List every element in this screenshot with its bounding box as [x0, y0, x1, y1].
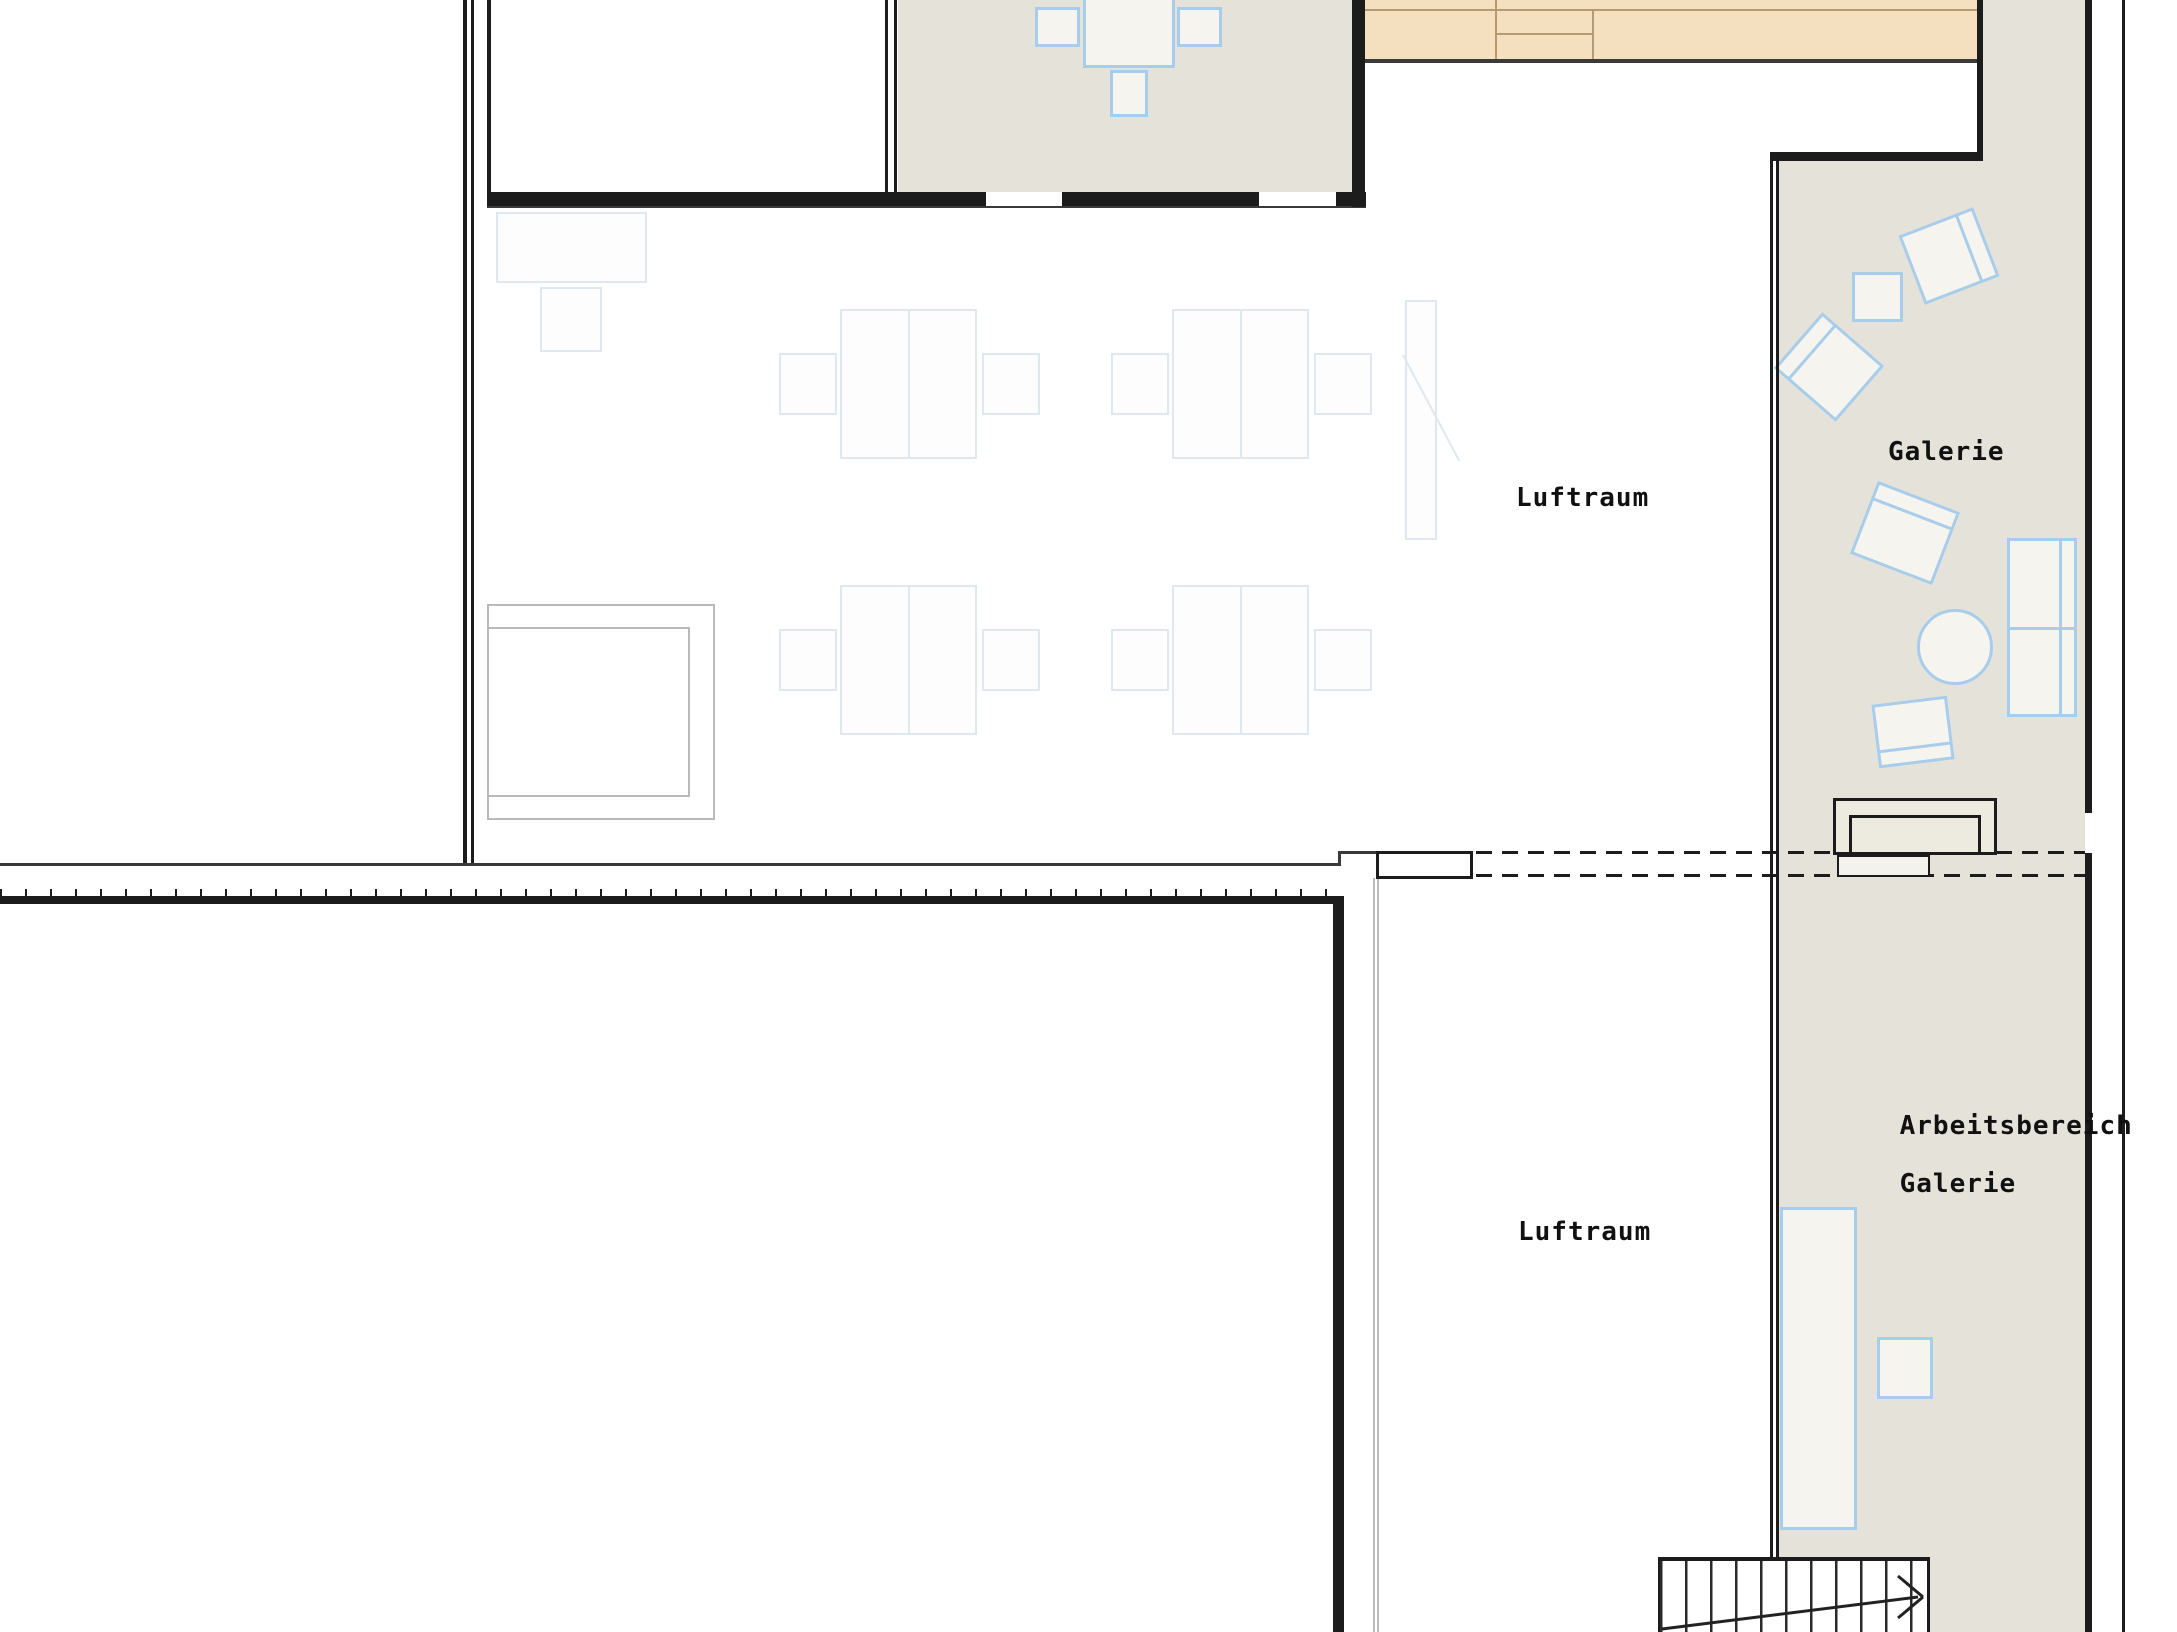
desk-chair — [1111, 353, 1169, 415]
floor-plan-canvas: Galerie Luftraum Luftraum Arbeitsbereich… — [0, 0, 2177, 1632]
label-luftraum-lower: Luftraum — [1518, 1218, 1651, 1247]
wall-left-outer — [463, 0, 467, 866]
void-lower-edge — [1377, 878, 1379, 1632]
wall-jamb — [487, 0, 491, 193]
wall-right — [2085, 853, 2092, 1632]
side-table — [1852, 272, 1903, 322]
wall-meeting-left — [894, 0, 897, 192]
desk-chair — [779, 353, 837, 415]
facade-line — [2122, 0, 2125, 1632]
wall-lower-room-top — [0, 896, 1344, 904]
wall-gallery-left — [1776, 152, 1779, 1557]
desk-chair — [982, 353, 1040, 415]
wall-hall-top — [487, 192, 898, 206]
wood-plank-line — [1592, 9, 1594, 59]
sofa — [2007, 538, 2077, 717]
label-arbeitsbereich-line1: Arbeitsbereich — [1900, 1111, 2133, 1141]
meeting-table — [1083, 0, 1175, 68]
desk-chair — [1314, 353, 1372, 415]
desk-group — [1172, 309, 1309, 459]
lounge-chair — [1871, 696, 1954, 769]
meeting-chair-bottom — [1110, 70, 1148, 117]
gallery-area-top-right — [1983, 0, 2085, 160]
desk-chair — [779, 629, 837, 691]
void-edge-line — [0, 863, 1338, 866]
floor-opening-inner — [487, 627, 690, 797]
desk-chair — [1111, 629, 1169, 691]
wall-pier — [1376, 851, 1473, 879]
desk-group — [1172, 585, 1309, 735]
desk-chair — [982, 629, 1040, 691]
wood-floor-edge — [1365, 59, 1983, 63]
work-chair — [1877, 1337, 1933, 1399]
dashed-line-lower — [1476, 874, 2085, 877]
label-arbeitsbereich-line2: Galerie — [1900, 1169, 2017, 1199]
void-lower-edge — [1373, 878, 1375, 1632]
wall-gallery-left — [1770, 152, 1773, 1557]
label-luftraum-upper: Luftraum — [1516, 484, 1649, 513]
desk-group — [840, 585, 977, 735]
wall-right — [2085, 0, 2092, 813]
wall-lower-room-right — [1333, 896, 1344, 1632]
round-table — [1917, 609, 1993, 685]
wall-hall-top — [898, 192, 986, 206]
wall-hall-top — [1062, 192, 1259, 206]
desk-group — [840, 309, 977, 459]
hall-chair — [540, 287, 602, 352]
label-galerie: Galerie — [1888, 438, 2005, 467]
void-edge-panel — [1405, 300, 1437, 540]
wood-plank-line — [1495, 0, 1497, 59]
stair-direction-arrow — [1650, 1555, 1950, 1632]
wall-gallery-top — [1770, 152, 1983, 161]
hall-cabinet — [496, 212, 647, 283]
gallery-niche-sill — [1837, 855, 1930, 877]
meeting-chair-left — [1035, 7, 1080, 47]
gallery-niche-inner — [1849, 815, 1981, 855]
void-edge-line — [1341, 851, 1379, 854]
wall-left-inner — [471, 0, 474, 866]
wood-plank-line — [1495, 33, 1592, 35]
wall-meeting-left — [885, 0, 888, 192]
work-desk — [1780, 1207, 1857, 1530]
wall-wood-end — [1977, 0, 1983, 160]
wall-meeting-right — [1352, 0, 1365, 207]
meeting-chair-right — [1177, 7, 1222, 47]
wood-plank-line — [1365, 9, 1977, 11]
wall-hall-top-line — [487, 206, 1366, 208]
label-arbeitsbereich: Arbeitsbereich Galerie — [1833, 1083, 2133, 1228]
desk-chair — [1314, 629, 1372, 691]
